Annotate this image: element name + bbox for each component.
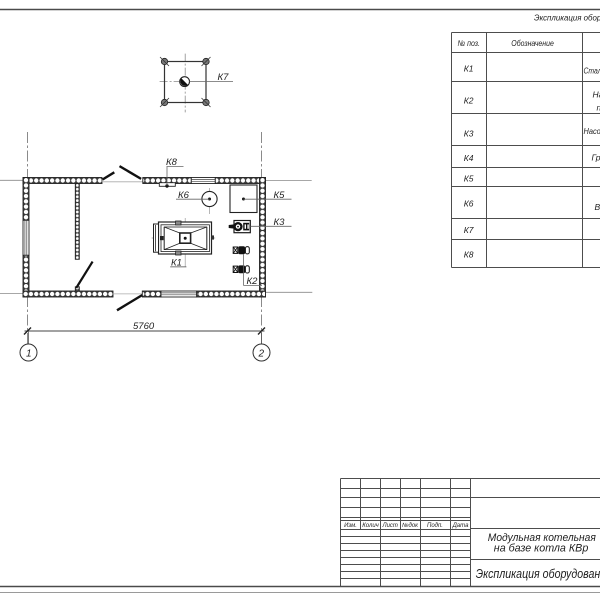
svg-text:Подп.: Подп.: [427, 523, 443, 529]
svg-text:1: 1: [26, 349, 32, 360]
svg-text:К1: К1: [464, 64, 474, 74]
svg-text:Лист: Лист: [381, 523, 397, 529]
svg-text:К4: К4: [464, 153, 474, 163]
svg-text:Экспликация оборудования: Экспликация оборудования: [476, 566, 600, 581]
svg-text:5760: 5760: [133, 321, 155, 332]
svg-text:по: по: [597, 103, 600, 113]
svg-text:К8: К8: [166, 157, 178, 168]
svg-text:К2: К2: [247, 276, 259, 287]
svg-text:Обозначение: Обозначение: [511, 38, 554, 48]
svg-text:К7: К7: [218, 72, 230, 83]
svg-text:К6: К6: [464, 199, 474, 209]
svg-text:№док: №док: [402, 522, 419, 529]
svg-text:Экспликация оборудования: Экспликация оборудования: [534, 13, 600, 23]
svg-text:К5: К5: [274, 190, 286, 201]
svg-text:К3: К3: [274, 217, 286, 228]
svg-text:Насос: Насос: [584, 126, 600, 136]
svg-text:На: На: [593, 90, 600, 100]
svg-text:№ поз.: № поз.: [458, 38, 481, 48]
svg-text:2: 2: [258, 349, 265, 360]
svg-text:К3: К3: [464, 129, 474, 139]
svg-text:на базе котла КВр: на базе котла КВр: [494, 543, 589, 555]
svg-text:Стальной: Стальной: [584, 66, 600, 76]
svg-text:Изм.: Изм.: [344, 523, 357, 529]
svg-text:В: В: [595, 202, 600, 212]
svg-text:К5: К5: [464, 174, 474, 184]
svg-text:К2: К2: [464, 96, 474, 106]
svg-text:Гр: Гр: [592, 152, 600, 162]
svg-text:Колич: Колич: [362, 523, 379, 529]
svg-text:К8: К8: [464, 250, 474, 260]
svg-text:Дата: Дата: [452, 523, 469, 529]
svg-text:К7: К7: [464, 225, 474, 235]
